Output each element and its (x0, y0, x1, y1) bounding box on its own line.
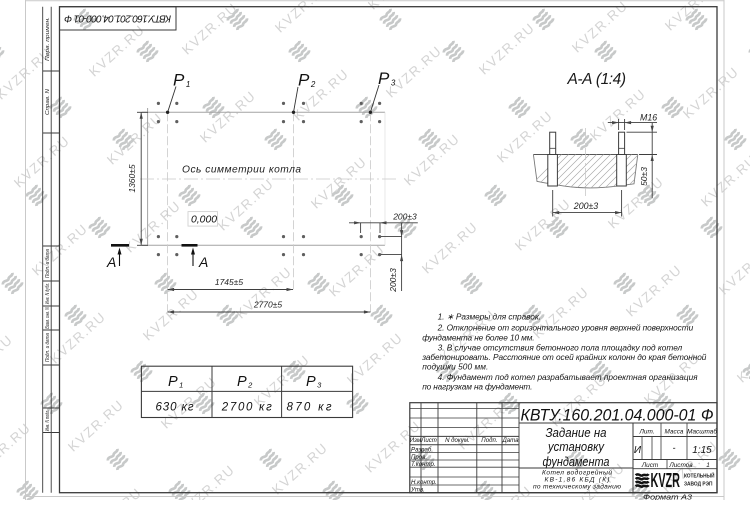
svg-text:200±3: 200±3 (388, 268, 398, 293)
svg-text:Утв.: Утв. (410, 486, 425, 493)
svg-text:ЗАВОД РЭП: ЗАВОД РЭП (684, 481, 713, 487)
svg-text:Дата: Дата (501, 437, 519, 444)
svg-text:50±3: 50±3 (639, 167, 649, 186)
svg-text:Лист: Лист (641, 462, 659, 469)
svg-text:Пров.: Пров. (411, 454, 427, 461)
svg-text:Подп.: Подп. (481, 437, 497, 444)
svg-text:М16: М16 (640, 112, 657, 122)
svg-text:КВТУ.160.201.04.000-01 Ф: КВТУ.160.201.04.000-01 Ф (64, 13, 171, 24)
svg-text:фундамента не более 10 мм.: фундамента не более 10 мм. (422, 332, 534, 342)
svg-text:1745±5: 1745±5 (215, 277, 244, 287)
svg-text:фундамента: фундамента (543, 455, 610, 469)
svg-text:2. Отклонение от горизонтально: 2. Отклонение от горизонтального уровня … (437, 322, 694, 332)
svg-text:Инв. N подл.: Инв. N подл. (45, 410, 51, 432)
svg-text:Задание на: Задание на (546, 426, 607, 440)
svg-text:Формат А3: Формат А3 (643, 493, 693, 501)
svg-text:КВТУ.160.201.04.000-01 Ф: КВТУ.160.201.04.000-01 Ф (521, 407, 714, 425)
svg-text:А: А (198, 254, 208, 270)
svg-text:-: - (673, 443, 676, 453)
svg-text:Лит.: Лит. (639, 429, 655, 436)
svg-text:Инв. N дубл.: Инв. N дубл. (45, 283, 51, 305)
svg-text:по нагрузкам на фундамент.: по нагрузкам на фундамент. (422, 381, 532, 391)
svg-text:подушки 500 мм.: подушки 500 мм. (422, 362, 488, 372)
svg-text:Масштаб: Масштаб (687, 428, 717, 436)
svg-text:Масса: Масса (665, 429, 684, 436)
svg-text:по техническому заданию: по техническому заданию (533, 483, 621, 491)
svg-text:И: И (634, 445, 642, 456)
svg-text:Изм: Изм (410, 437, 422, 444)
svg-text:Ось симметрии котла: Ось симметрии котла (182, 165, 301, 176)
svg-text:N докум.: N докум. (445, 437, 470, 444)
svg-text:200±3: 200±3 (392, 212, 417, 222)
svg-text:0,000: 0,000 (191, 215, 217, 226)
svg-text:Листов: Листов (668, 462, 693, 469)
svg-text:КОТЕЛЬНЫЙ: КОТЕЛЬНЫЙ (684, 472, 715, 480)
svg-text:3. В случае отсутствия бетонно: 3. В случае отсутствия бетонного пола пл… (438, 342, 683, 352)
svg-text:1. ∗ Размеры для справок.: 1. ∗ Размеры для справок. (438, 312, 541, 322)
svg-text:1:15: 1:15 (692, 445, 712, 456)
svg-text:Подп. и дата: Подп. и дата (45, 249, 51, 278)
svg-text:2770±5: 2770±5 (253, 300, 283, 310)
svg-text:Разраб.: Разраб. (411, 446, 433, 453)
svg-text:KVZR: KVZR (651, 470, 681, 492)
svg-text:Перв. примен.: Перв. примен. (45, 17, 51, 61)
svg-text:А-А (1:4): А-А (1:4) (567, 71, 627, 88)
svg-text:630 кг: 630 кг (156, 402, 194, 414)
svg-text:200±3: 200±3 (573, 201, 599, 211)
svg-text:Т.контр.: Т.контр. (411, 461, 436, 468)
svg-text:Котел водогрейный: Котел водогрейный (542, 469, 612, 477)
svg-text:Взам. инв. N: Взам. инв. N (45, 307, 51, 329)
svg-text:А: А (106, 254, 116, 270)
svg-text:установку: установку (547, 440, 605, 454)
svg-text:Лист: Лист (420, 437, 437, 444)
svg-text:1360±5: 1360±5 (127, 164, 137, 193)
svg-text:Справ. N: Справ. N (45, 88, 51, 115)
svg-text:Н.контр.: Н.контр. (411, 479, 437, 486)
svg-text:Подп. и дата: Подп. и дата (45, 333, 51, 362)
svg-text:КВ-1,86 КБД (К): КВ-1,86 КБД (К) (545, 477, 610, 484)
svg-text:1: 1 (706, 462, 710, 469)
